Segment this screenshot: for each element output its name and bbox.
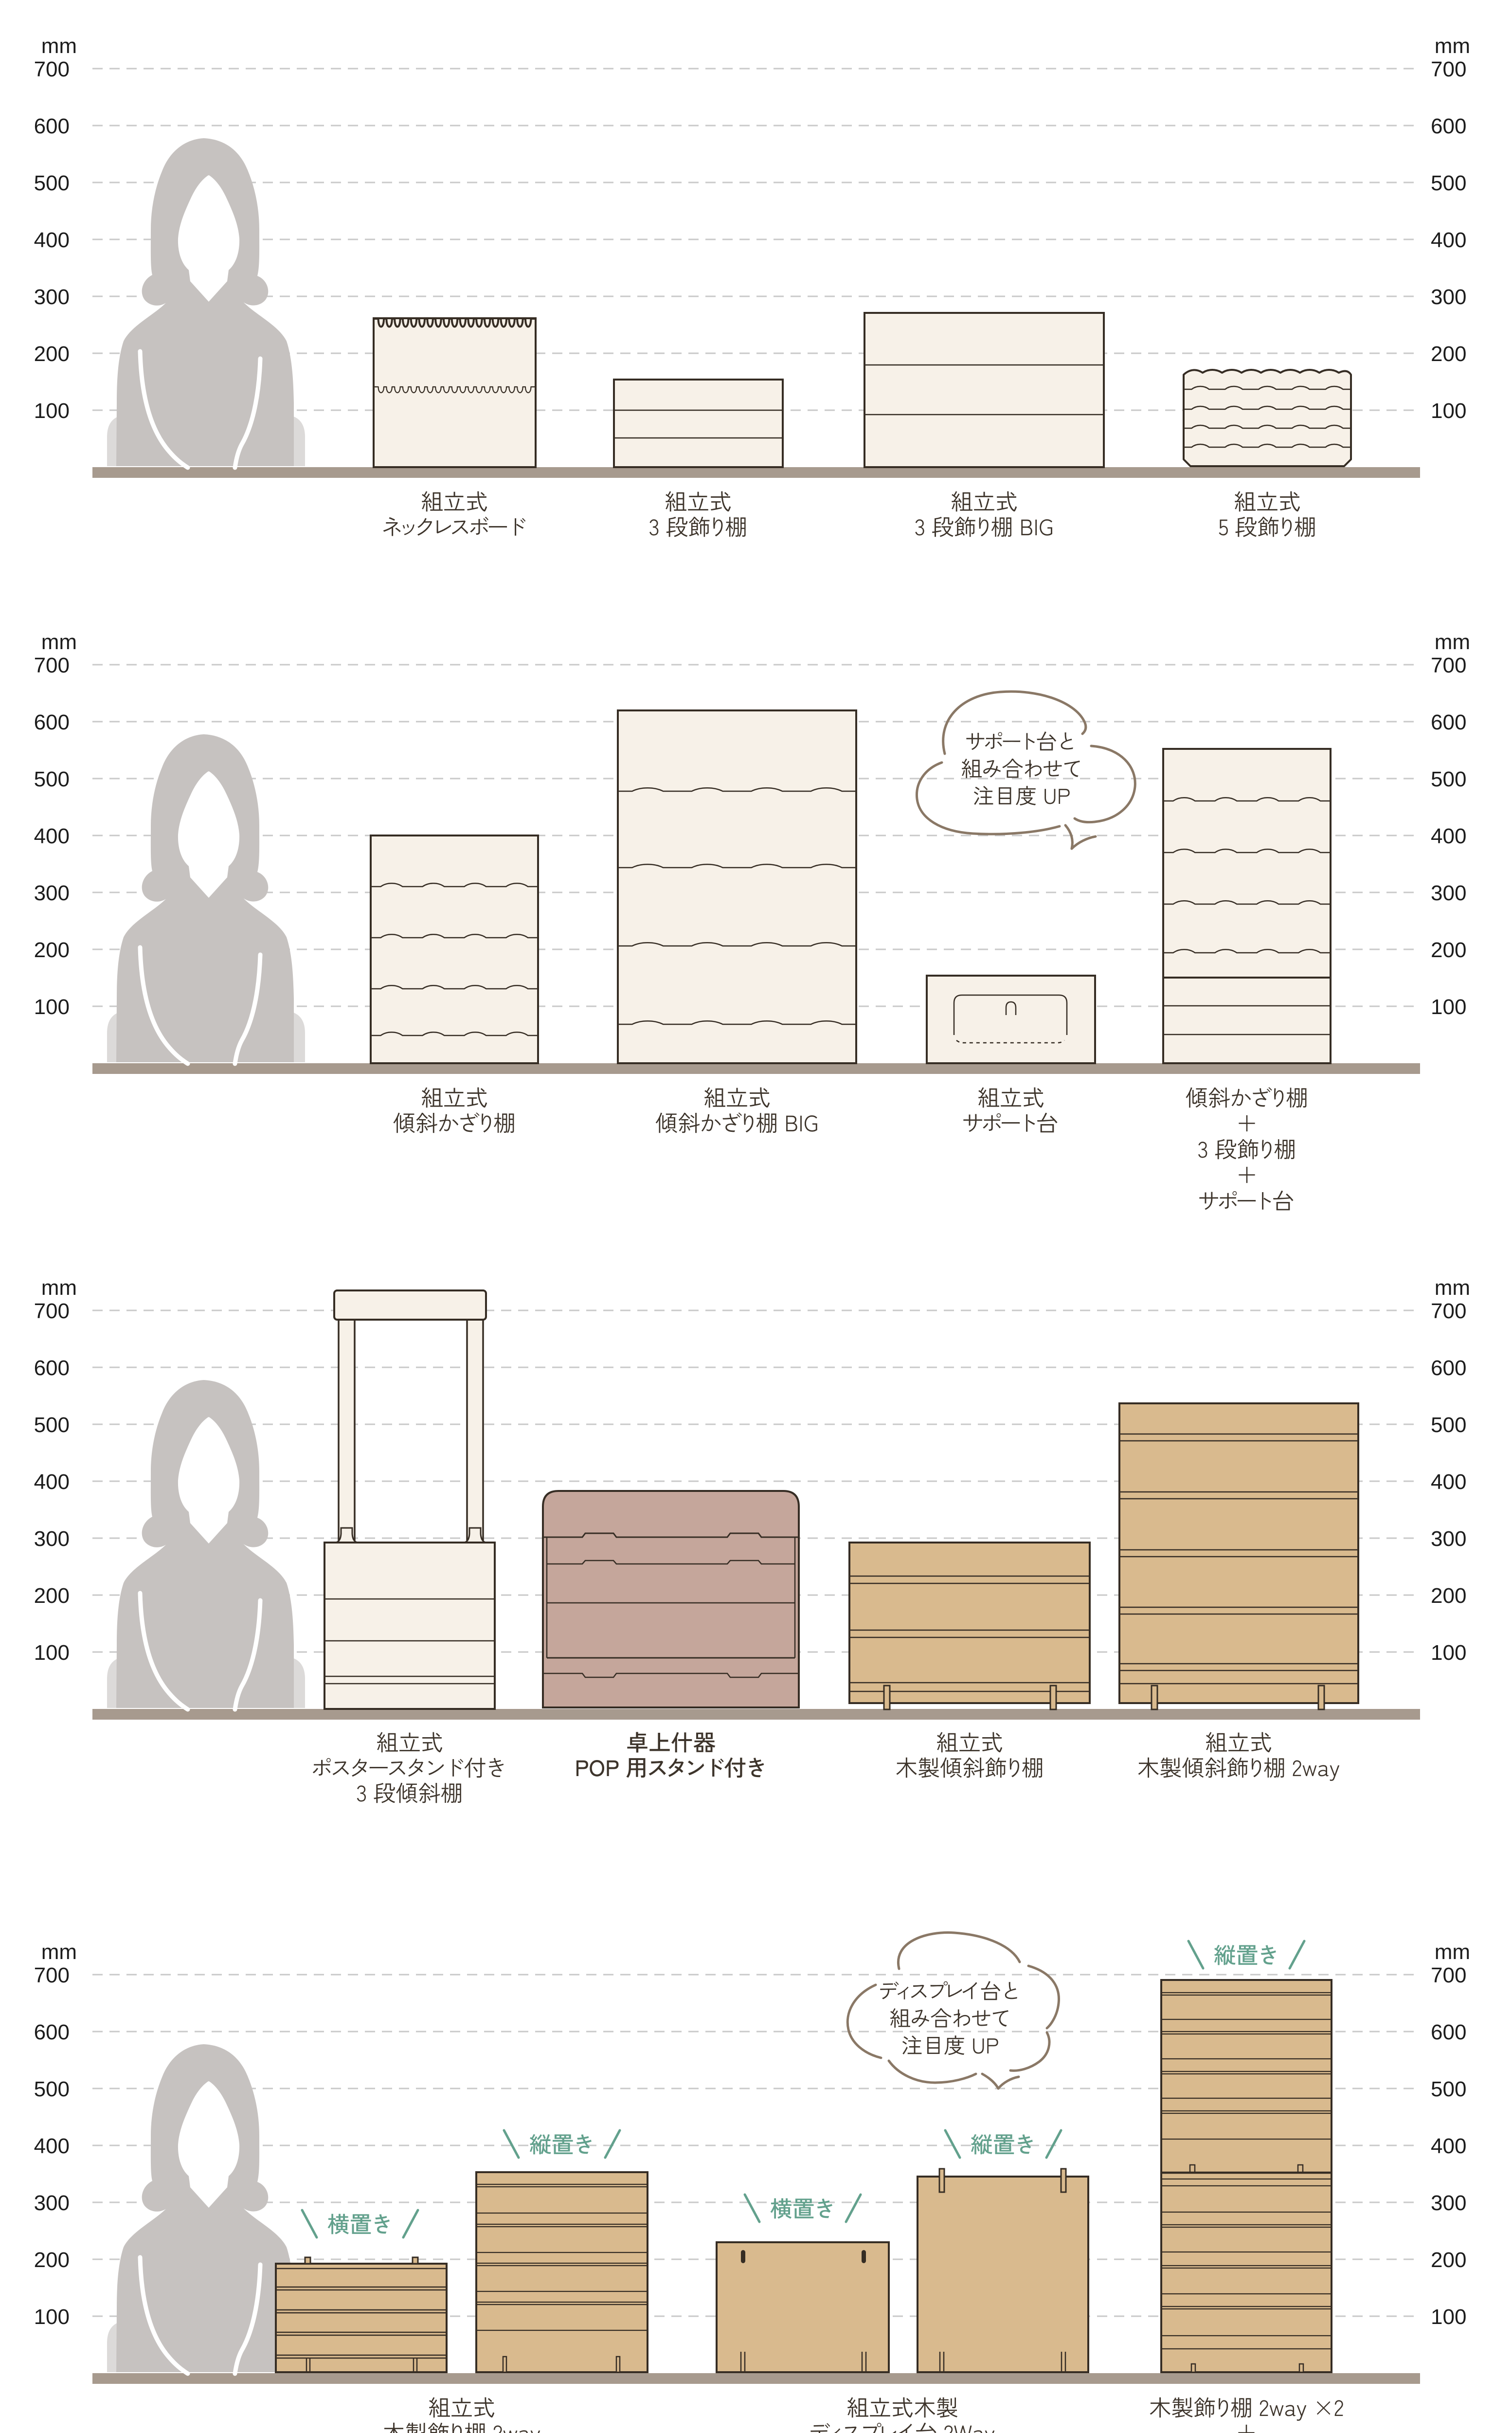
- svg-text:700: 700: [1431, 654, 1466, 677]
- svg-text:200: 200: [1431, 2248, 1466, 2272]
- svg-text:300: 300: [34, 1527, 70, 1551]
- svg-text:200: 200: [34, 2248, 70, 2272]
- svg-text:300: 300: [34, 2191, 70, 2215]
- svg-text:300: 300: [1431, 1527, 1466, 1551]
- svg-text:700: 700: [1431, 1299, 1466, 1323]
- svg-text:300: 300: [34, 285, 70, 309]
- svg-text:mm: mm: [41, 1276, 77, 1300]
- svg-text:200: 200: [1431, 938, 1466, 962]
- svg-text:500: 500: [1431, 171, 1466, 195]
- svg-text:100: 100: [34, 399, 70, 423]
- svg-text:400: 400: [1431, 2134, 1466, 2158]
- svg-text:500: 500: [34, 1413, 70, 1437]
- svg-text:700: 700: [1431, 1963, 1466, 1987]
- svg-text:600: 600: [1431, 114, 1466, 138]
- svg-text:700: 700: [34, 1299, 70, 1323]
- svg-text:700: 700: [34, 1963, 70, 1987]
- svg-text:200: 200: [34, 1584, 70, 1608]
- svg-text:600: 600: [1431, 710, 1466, 734]
- svg-text:400: 400: [1431, 1470, 1466, 1494]
- svg-text:100: 100: [1431, 399, 1466, 423]
- svg-text:600: 600: [34, 710, 70, 734]
- svg-text:700: 700: [1431, 57, 1466, 81]
- svg-text:600: 600: [34, 114, 70, 138]
- svg-text:700: 700: [34, 57, 70, 81]
- svg-text:700: 700: [34, 654, 70, 677]
- svg-text:100: 100: [1431, 2305, 1466, 2329]
- svg-text:100: 100: [1431, 1641, 1466, 1665]
- svg-text:400: 400: [1431, 824, 1466, 848]
- svg-text:400: 400: [34, 824, 70, 848]
- svg-text:400: 400: [34, 2134, 70, 2158]
- svg-text:200: 200: [1431, 342, 1466, 366]
- svg-text:400: 400: [34, 1470, 70, 1494]
- svg-text:200: 200: [34, 938, 70, 962]
- svg-text:500: 500: [1431, 2077, 1466, 2101]
- svg-text:500: 500: [1431, 1413, 1466, 1437]
- svg-text:600: 600: [1431, 2020, 1466, 2044]
- svg-text:500: 500: [1431, 767, 1466, 791]
- svg-text:100: 100: [34, 995, 70, 1019]
- svg-text:mm: mm: [1435, 34, 1470, 58]
- svg-text:600: 600: [34, 1356, 70, 1380]
- svg-text:500: 500: [34, 171, 70, 195]
- svg-text:600: 600: [34, 2020, 70, 2044]
- svg-text:500: 500: [34, 2077, 70, 2101]
- svg-text:300: 300: [34, 881, 70, 905]
- svg-text:mm: mm: [1435, 1276, 1470, 1300]
- svg-text:400: 400: [1431, 228, 1466, 252]
- svg-text:400: 400: [34, 228, 70, 252]
- svg-text:300: 300: [1431, 285, 1466, 309]
- svg-text:mm: mm: [1435, 1940, 1470, 1964]
- svg-text:mm: mm: [41, 630, 77, 654]
- svg-text:mm: mm: [41, 1940, 77, 1964]
- svg-text:300: 300: [1431, 881, 1466, 905]
- svg-text:mm: mm: [41, 34, 77, 58]
- svg-text:300: 300: [1431, 2191, 1466, 2215]
- svg-text:100: 100: [1431, 995, 1466, 1019]
- svg-text:600: 600: [1431, 1356, 1466, 1380]
- svg-text:100: 100: [34, 1641, 70, 1665]
- svg-text:200: 200: [34, 342, 70, 366]
- svg-text:100: 100: [34, 2305, 70, 2329]
- svg-text:500: 500: [34, 767, 70, 791]
- svg-text:mm: mm: [1435, 630, 1470, 654]
- svg-text:200: 200: [1431, 1584, 1466, 1608]
